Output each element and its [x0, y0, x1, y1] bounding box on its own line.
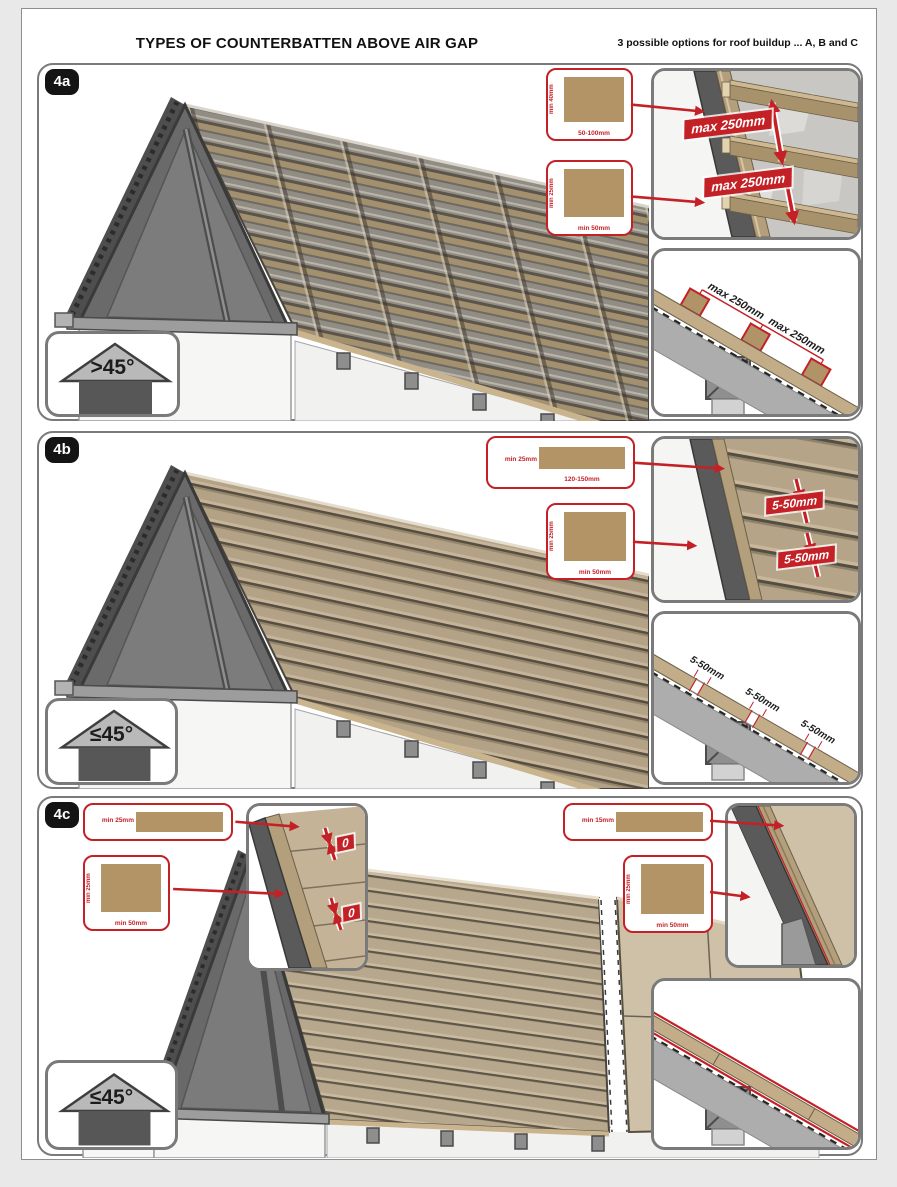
sheet-closeup-drawing: [728, 806, 854, 965]
inset-sheet-closeup-4c: [725, 803, 857, 968]
panel-4a: 4a min 40mm 50-100mm: [37, 63, 863, 421]
vertical-dim-label: min 25mm: [86, 861, 99, 915]
page-title: TYPES OF COUNTERBATTEN ABOVE AIR GAP: [112, 35, 502, 52]
wood-section: [564, 169, 624, 217]
callout-batten-4c-left: min 25mm min 50mm: [83, 855, 170, 931]
panel-4c: 4c: [37, 796, 863, 1156]
cross-section-drawing: [654, 981, 858, 1147]
wood-plank: [616, 812, 703, 832]
bottom-dim-label: min 50mm: [564, 569, 626, 576]
callout-plank-4b: min 25mm 120-150mm: [486, 436, 635, 489]
bottom-dim-label: 50-100mm: [564, 130, 624, 137]
side-dim-label: min 25mm: [491, 456, 537, 463]
page-background: TYPES OF COUNTERBATTEN ABOVE AIR GAP 3 p…: [0, 0, 897, 1187]
inset-roof-closeup-4b: 5-50mm 5-50mm: [651, 436, 861, 603]
callout-batten-4a: min 25mm min 50mm: [546, 160, 633, 236]
inset-cross-section-4c: [651, 978, 861, 1150]
roof-pitch-badge-4b: ≤45°: [45, 698, 178, 785]
deck-closeup-drawing: [249, 806, 365, 968]
plank-closeup-drawing: [654, 439, 858, 600]
wood-section: [641, 864, 704, 914]
document-page: TYPES OF COUNTERBATTEN ABOVE AIR GAP 3 p…: [21, 8, 877, 1160]
roof-pitch-badge-4c: ≤45°: [45, 1060, 178, 1150]
inset-cross-section-4a: max 250mm max 250mm: [651, 248, 861, 417]
pitch-angle-label: ≤45°: [48, 1086, 175, 1110]
callout-batten-4c-right: min 25mm min 50mm: [623, 855, 713, 933]
callout-board-4c-left: min 25mm: [83, 803, 233, 841]
callout-board-4c-right: min 15mm: [563, 803, 713, 841]
vertical-dim-label: min 25mm: [549, 166, 562, 220]
roof-pitch-badge-4a: >45°: [45, 331, 180, 417]
panel-4b: 4b min 25mm 120-150mm min: [37, 431, 863, 789]
cross-section-drawing: max 250mm max 250mm: [654, 251, 858, 414]
header-note: 3 possible options for roof buildup ... …: [558, 37, 858, 49]
bottom-dim-label: min 50mm: [564, 225, 624, 232]
callout-batten-4b: min 25mm min 50mm: [546, 503, 635, 580]
inset-deck-closeup-4c: 0 0: [246, 803, 368, 971]
bottom-dim-label: min 50mm: [641, 922, 704, 929]
wood-section: [564, 512, 626, 561]
inset-cross-section-4b: 5-50mm 5-50mm 5-50mm: [651, 611, 861, 785]
vertical-dim-label: min 25mm: [626, 861, 639, 917]
vertical-dim-label: min 40mm: [549, 74, 562, 125]
side-dim-label: min 25mm: [88, 817, 134, 824]
panel-label-4c: 4c: [45, 802, 79, 828]
wood-plank: [136, 812, 223, 832]
side-dim-label: min 15mm: [568, 817, 614, 824]
wood-section: [564, 77, 624, 122]
bottom-dim-label: min 50mm: [101, 920, 161, 927]
panel-label-4a: 4a: [45, 69, 79, 95]
vertical-dim-label: min 25mm: [549, 509, 562, 564]
wood-plank: [539, 447, 625, 469]
pitch-angle-label: ≤45°: [48, 723, 175, 747]
callout-counterbatten-4a: min 40mm 50-100mm: [546, 68, 633, 141]
bottom-dim-label: 120-150mm: [539, 476, 625, 483]
batten-closeup-drawing: [654, 71, 858, 237]
panel-label-4b: 4b: [45, 437, 79, 463]
pitch-angle-label: >45°: [48, 356, 177, 380]
cross-section-drawing: 5-50mm 5-50mm 5-50mm: [654, 614, 858, 782]
wood-section: [101, 864, 161, 912]
inset-roof-closeup-4a: max 250mm max 250mm: [651, 68, 861, 240]
